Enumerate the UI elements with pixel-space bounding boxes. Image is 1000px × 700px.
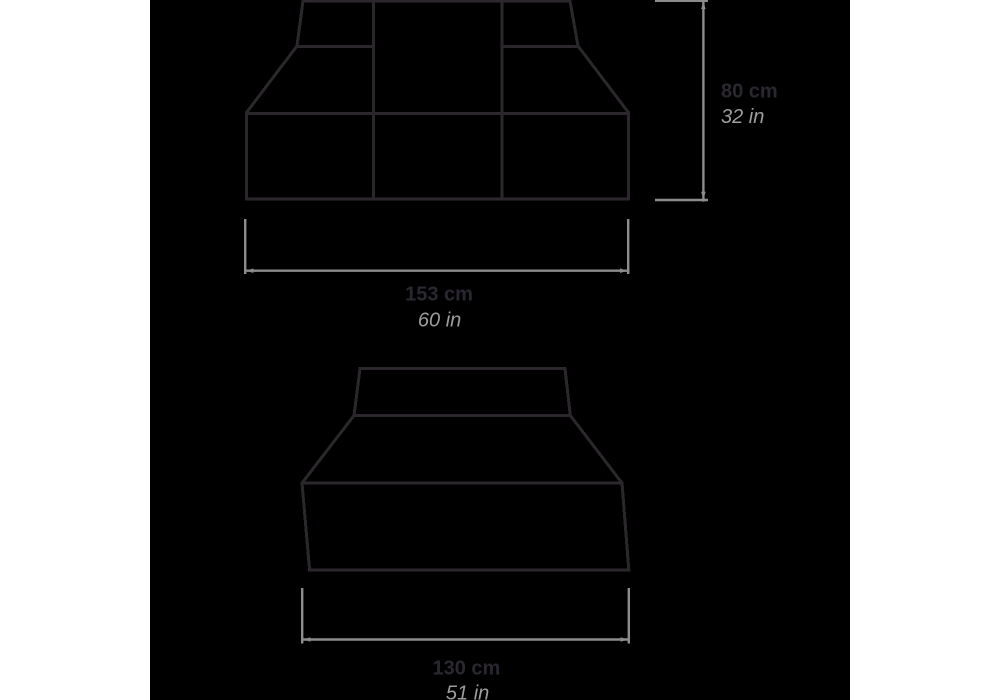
svg-text:130 cm: 130 cm — [432, 658, 500, 680]
svg-text:80 cm: 80 cm — [721, 81, 778, 103]
svg-text:153 cm: 153 cm — [405, 284, 473, 306]
svg-text:60 in: 60 in — [418, 309, 461, 331]
svg-text:51 in: 51 in — [446, 682, 489, 700]
svg-text:32 in: 32 in — [721, 106, 764, 128]
